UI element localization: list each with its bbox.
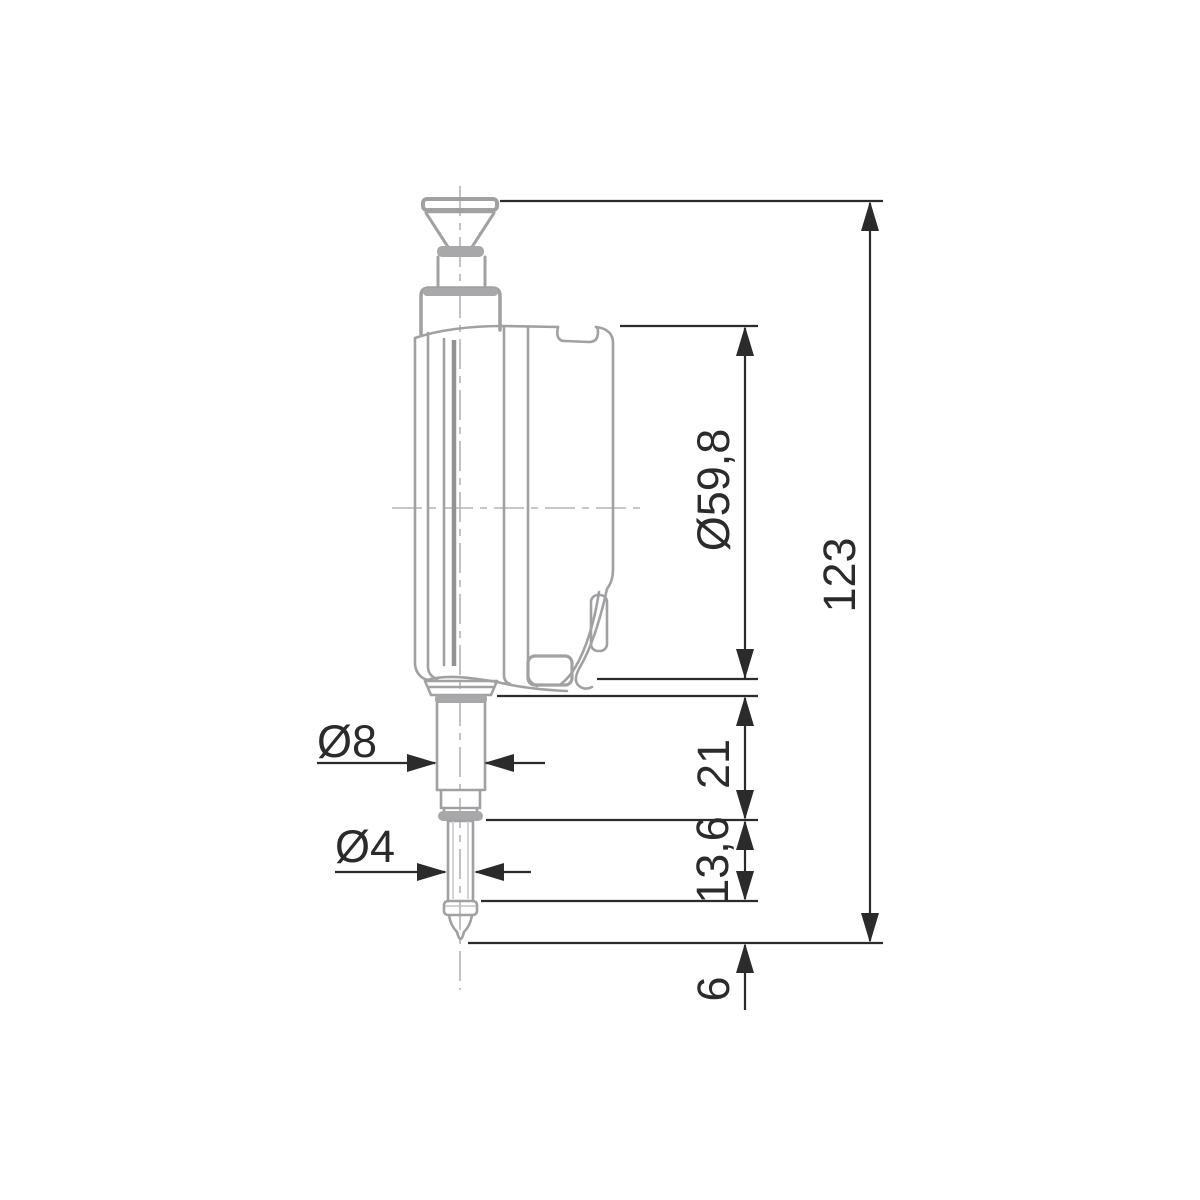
dim-label-stem-diameter: Ø8 — [317, 716, 377, 767]
body-top-notch — [557, 327, 598, 342]
dim-label-stem-length: 21 — [688, 739, 739, 789]
knob-base-top-band — [423, 288, 498, 296]
arrowhead-up — [736, 943, 754, 973]
body-left-outer-edge — [415, 338, 427, 680]
arrowhead-left — [474, 863, 504, 881]
dim-tip-length: 6 — [688, 943, 754, 1010]
arrowhead-down — [736, 790, 754, 820]
dim-spindle-length: 13,6 — [687, 816, 754, 904]
body-top-edge — [415, 326, 558, 338]
body-mid-line — [528, 327, 537, 686]
stem-sides — [437, 702, 485, 790]
arrowhead-down — [736, 871, 754, 901]
dim-label-overall-height: 123 — [814, 537, 865, 612]
stem — [437, 702, 485, 821]
boss-outline — [425, 681, 497, 695]
arrowhead-right — [407, 754, 437, 772]
arrowhead-up — [736, 326, 754, 356]
arrowhead-up — [736, 696, 754, 726]
body-right-edge — [596, 327, 613, 589]
knob-collar — [437, 246, 484, 257]
stem-collar — [438, 811, 483, 821]
dim-tip-diameter: Ø4 — [335, 821, 531, 881]
arrowhead-down — [861, 913, 879, 943]
dim-overall-height: 123 — [814, 201, 879, 943]
arrowhead-down — [736, 649, 754, 679]
dim-label-body-diameter: Ø59,8 — [688, 429, 739, 552]
mounting-lug — [561, 589, 607, 689]
arrowhead-up — [861, 201, 879, 231]
dim-label-spindle-length: 13,6 — [687, 816, 738, 904]
technical-drawing-page: Ø59,8 123 21 13,6 6 — [0, 0, 1200, 1200]
indicator-body — [415, 326, 613, 703]
dial-indicator-outline — [415, 199, 613, 939]
dim-label-tip-diameter: Ø4 — [335, 821, 395, 872]
dim-body-diameter: Ø59,8 — [688, 326, 754, 679]
body-bezel-edge — [428, 333, 437, 679]
body-front-line — [504, 326, 510, 684]
dim-stem-length: 21 — [688, 696, 754, 820]
dimensions: Ø59,8 123 21 13,6 6 — [317, 201, 883, 1010]
arrowhead-right — [417, 863, 447, 881]
arrowhead-left — [484, 754, 514, 772]
dial-indicator-dimension-drawing: Ø59,8 123 21 13,6 6 — [0, 0, 1200, 1200]
knob-neck — [438, 257, 485, 289]
dim-stem-diameter: Ø8 — [317, 716, 545, 772]
boss-ring — [435, 695, 487, 703]
stem-boss — [425, 681, 497, 703]
arrowhead-up — [736, 820, 754, 850]
tip-ball — [457, 932, 464, 939]
dim-label-tip-length: 6 — [688, 976, 739, 1001]
